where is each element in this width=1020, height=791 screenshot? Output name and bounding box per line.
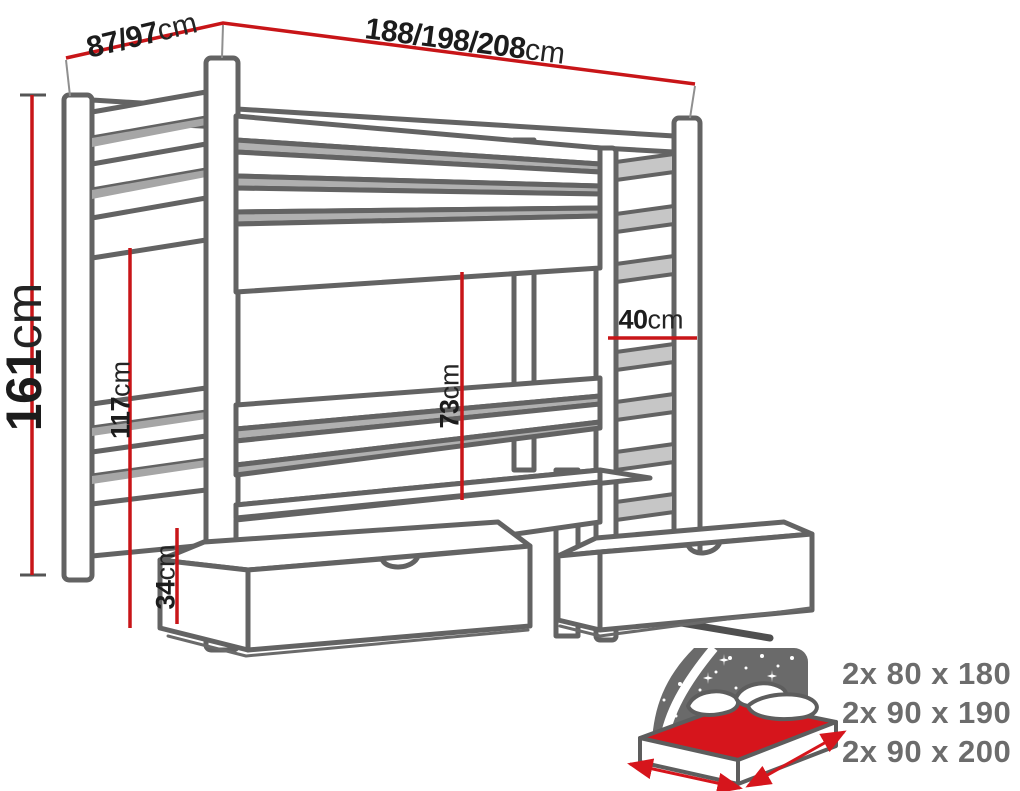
ladder-rung — [616, 444, 674, 470]
dimension-ladder-width-unit: cm — [648, 305, 684, 335]
ladder-rung — [616, 256, 674, 282]
right-drawer-front — [600, 534, 812, 630]
dimension-bunk-clearance-unit: cm — [435, 363, 465, 399]
ladder-rung — [616, 494, 674, 520]
dimension-bunk-clearance: 73cm — [437, 363, 464, 428]
dimension-drawer-height-unit: cm — [151, 544, 181, 580]
dimension-total-height: 161cm — [0, 283, 49, 432]
mattress-size-option: 2x 80 x 180 — [842, 654, 1011, 693]
ladder-rung — [616, 344, 674, 370]
ladder — [616, 154, 674, 564]
dimension-underside-height-value: 117 — [106, 397, 136, 439]
dimension-underside-height-unit: cm — [106, 361, 136, 397]
dimension-ladder-width-value: 40 — [618, 305, 647, 335]
dimension-underside-height: 117cm — [108, 361, 135, 439]
drawers — [160, 522, 812, 656]
dimension-drawer-height-value: 34 — [151, 580, 181, 609]
bunk-bed-dimension-diagram: 87/97cm 188/198/208cm 161cm 117cm 73cm 4… — [0, 0, 1020, 791]
dimension-ladder-width: 40cm — [618, 307, 683, 334]
ladder-rung — [616, 154, 674, 180]
mattress-size-list: 2x 80 x 180 2x 90 x 190 2x 90 x 200 — [842, 654, 1011, 771]
mattress-size-option: 2x 90 x 200 — [842, 732, 1011, 771]
dimension-total-height-unit: cm — [0, 283, 52, 350]
mattress-size-option: 2x 90 x 190 — [842, 693, 1011, 732]
dimension-drawer-height: 34cm — [153, 544, 180, 609]
ladder-rung — [616, 206, 674, 232]
dimension-length-unit: cm — [523, 33, 567, 71]
headboard-slats — [92, 92, 206, 556]
pillow-icon — [688, 691, 738, 715]
left-drawer — [160, 522, 530, 650]
dimension-bunk-clearance-value: 73 — [435, 399, 465, 428]
back-left-post — [64, 95, 92, 580]
duvet-icon — [748, 694, 817, 719]
mattress-sizes-icon — [630, 648, 844, 788]
dimension-total-height-value: 161 — [0, 349, 52, 431]
ladder-rung — [616, 394, 674, 420]
top-bunk-rails — [236, 116, 600, 292]
